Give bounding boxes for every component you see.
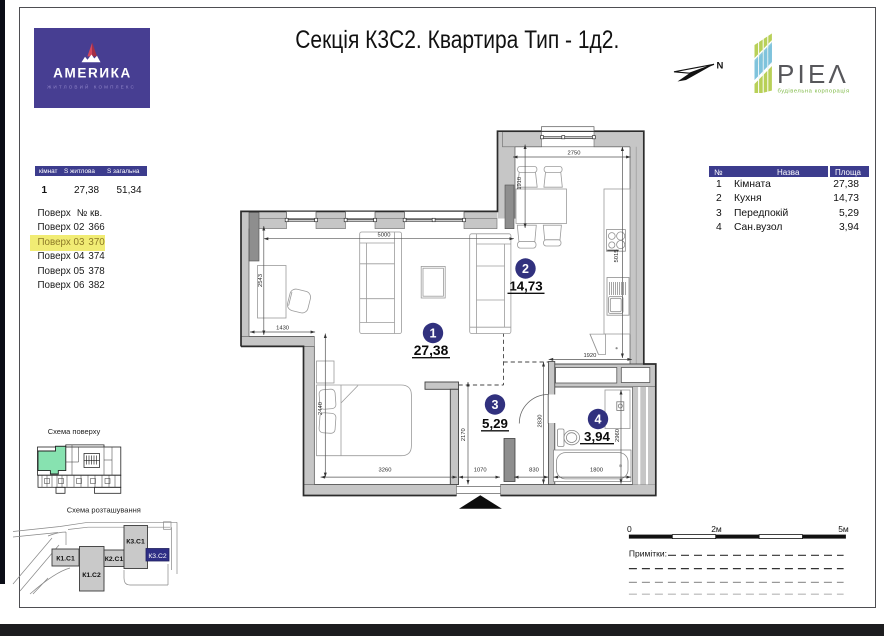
svg-text:5м: 5м [838,524,849,534]
svg-text:Примітки:: Примітки: [629,548,667,558]
svg-text:К1.С1: К1.С1 [56,555,75,562]
svg-text:2м: 2м [711,524,722,534]
svg-text:0: 0 [627,524,632,534]
svg-text:Схема поверху: Схема поверху [48,427,101,436]
svg-text:К3.С2: К3.С2 [148,553,167,560]
svg-text:К1.С2: К1.С2 [82,572,101,579]
svg-text:Схема розташування: Схема розташування [67,506,141,515]
svg-text:К2.С1: К2.С1 [105,556,124,563]
svg-text:К3.С1: К3.С1 [126,539,145,546]
